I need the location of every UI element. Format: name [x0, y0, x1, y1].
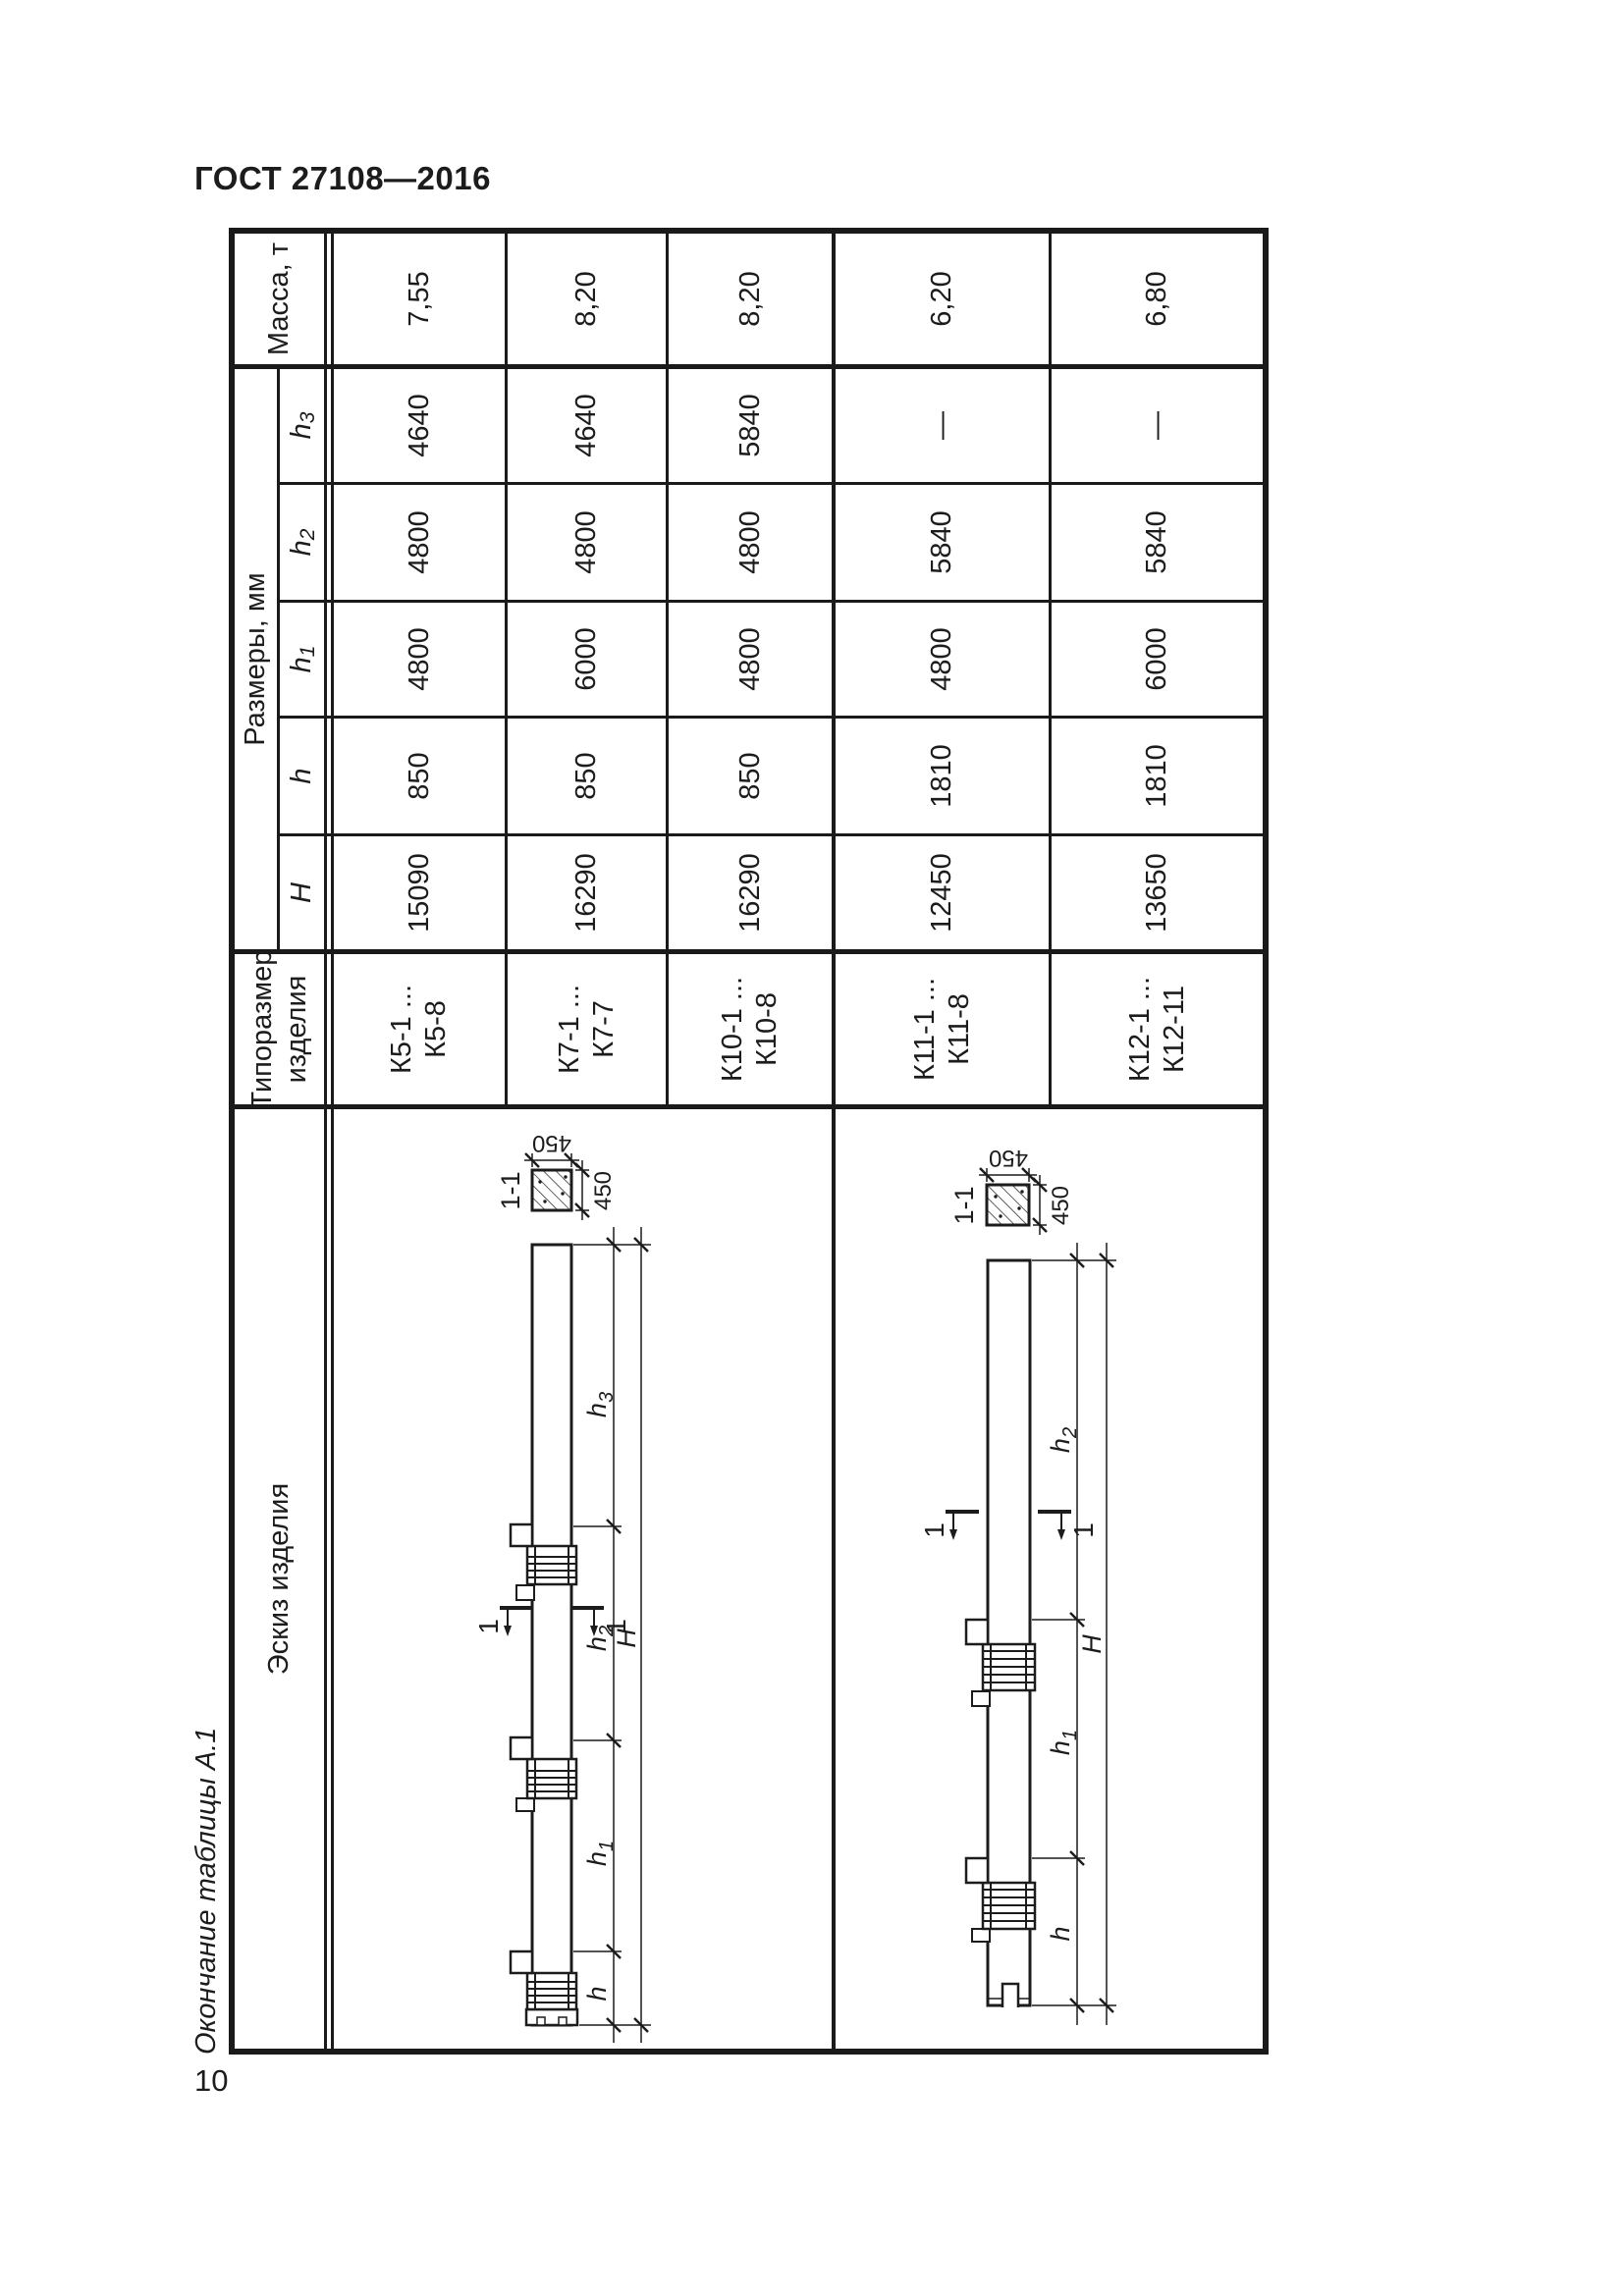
cell-h3: 5840 — [669, 369, 832, 482]
cell-h1: 6000 — [1052, 603, 1263, 716]
table-row-type: К11-1 ...К11-8 — [836, 954, 1049, 1104]
header-dim-h2: h2 — [280, 485, 324, 600]
dim-label-h1: h1 — [1046, 1730, 1081, 1755]
section-width-dim: 450 — [1048, 1186, 1074, 1225]
cell-mass: 6,80 — [1052, 234, 1263, 364]
column-sketch-three-joints: 1-1 450 450 1 1 h3 h2 h1 h H — [327, 1109, 832, 2055]
table-row-type: К10-1 ...К10-8 — [669, 954, 832, 1104]
column-sketch-two-joints: 1-1 450 450 1 1 h2 h1 h H — [832, 1109, 1269, 2055]
cell-h: 1810 — [836, 719, 1049, 833]
dim-label-H: H — [1077, 1634, 1107, 1654]
cut-mark-label: 1 — [473, 1619, 504, 1634]
section-width-dim: 450 — [590, 1171, 617, 1210]
cell-mass: 8,20 — [508, 234, 666, 364]
cell-mass: 8,20 — [669, 234, 832, 364]
dim-label-h1: h1 — [582, 1841, 618, 1866]
standard-number: ГОСТ 27108—2016 — [194, 160, 491, 197]
cell-mass: 7,55 — [334, 234, 505, 364]
header-dim-h: h — [280, 719, 324, 833]
cell-h2: 4800 — [669, 485, 832, 600]
dim-label-h3: h3 — [582, 1392, 618, 1417]
header-type-size-line1: Типоразмер — [245, 950, 280, 1109]
table-caption: Окончание таблицы А.1 — [190, 1475, 226, 2055]
dim-label-h: h — [1046, 1926, 1075, 1941]
section-detail — [979, 1168, 1047, 1235]
section-label: 1-1 — [949, 1186, 979, 1224]
section-detail — [524, 1153, 589, 1220]
cell-h2: 5840 — [1052, 485, 1263, 600]
cell-h3: — — [1052, 369, 1263, 482]
column-bar — [532, 1245, 571, 2025]
cell-h2: 4800 — [508, 485, 666, 600]
cell-h2: 4800 — [334, 485, 505, 600]
cell-H: 12450 — [836, 836, 1049, 949]
header-dimensions-group: Размеры, мм — [235, 369, 277, 949]
section-height-dim: 450 — [989, 1145, 1028, 1171]
document-page: ГОСТ 27108—2016 Окончание таблицы А.1 — [0, 0, 1624, 2296]
cell-mass: 6,20 — [836, 234, 1049, 364]
cell-h: 850 — [508, 719, 666, 833]
cut-mark-label: 1 — [919, 1522, 949, 1538]
header-mass: Масса, т — [235, 234, 324, 364]
spec-table: Эскиз изделия Типоразмер изделия Размеры… — [229, 228, 1269, 2055]
cell-h3: 4640 — [334, 369, 505, 482]
cell-H: 13650 — [1052, 836, 1263, 949]
table-row-type: К12-1 ...К12-11 — [1052, 954, 1263, 1104]
cell-H: 15090 — [334, 836, 505, 949]
cell-h3: 4640 — [508, 369, 666, 482]
header-dim-H: H — [280, 836, 324, 949]
cell-H: 16290 — [508, 836, 666, 949]
cell-h1: 6000 — [508, 603, 666, 716]
cell-h1: 4800 — [334, 603, 505, 716]
cell-h1: 4800 — [669, 603, 832, 716]
cell-H: 16290 — [669, 836, 832, 949]
extension-lines — [1032, 1260, 1116, 2005]
table-row-type: К5-1 ...К5-8 — [334, 954, 505, 1104]
dim-label-h2: h2 — [1046, 1427, 1081, 1453]
cell-h: 850 — [669, 719, 832, 833]
table-row-type: К7-1 ...К7-7 — [508, 954, 666, 1104]
dim-label-h: h — [582, 1986, 612, 2001]
header-type-size-line2: изделия — [280, 976, 314, 1084]
section-label: 1-1 — [496, 1171, 525, 1209]
cell-h2: 5840 — [836, 485, 1049, 600]
cell-h3: — — [836, 369, 1049, 482]
cell-h: 850 — [334, 719, 505, 833]
cell-h1: 4800 — [836, 603, 1049, 716]
cell-h: 1810 — [1052, 719, 1263, 833]
section-height-dim: 450 — [532, 1130, 571, 1156]
header-sketch: Эскиз изделия — [235, 1109, 324, 2049]
header-dim-h1: h1 — [280, 603, 324, 716]
dim-label-H: H — [612, 1629, 641, 1648]
cut-mark-label: 1 — [1068, 1522, 1099, 1538]
header-dim-h3: h3 — [280, 369, 324, 482]
header-type-size: Типоразмер изделия — [235, 954, 324, 1104]
page-number: 10 — [194, 2063, 228, 2099]
rotated-table-container: Эскиз изделия Типоразмер изделия Размеры… — [229, 228, 1269, 2055]
